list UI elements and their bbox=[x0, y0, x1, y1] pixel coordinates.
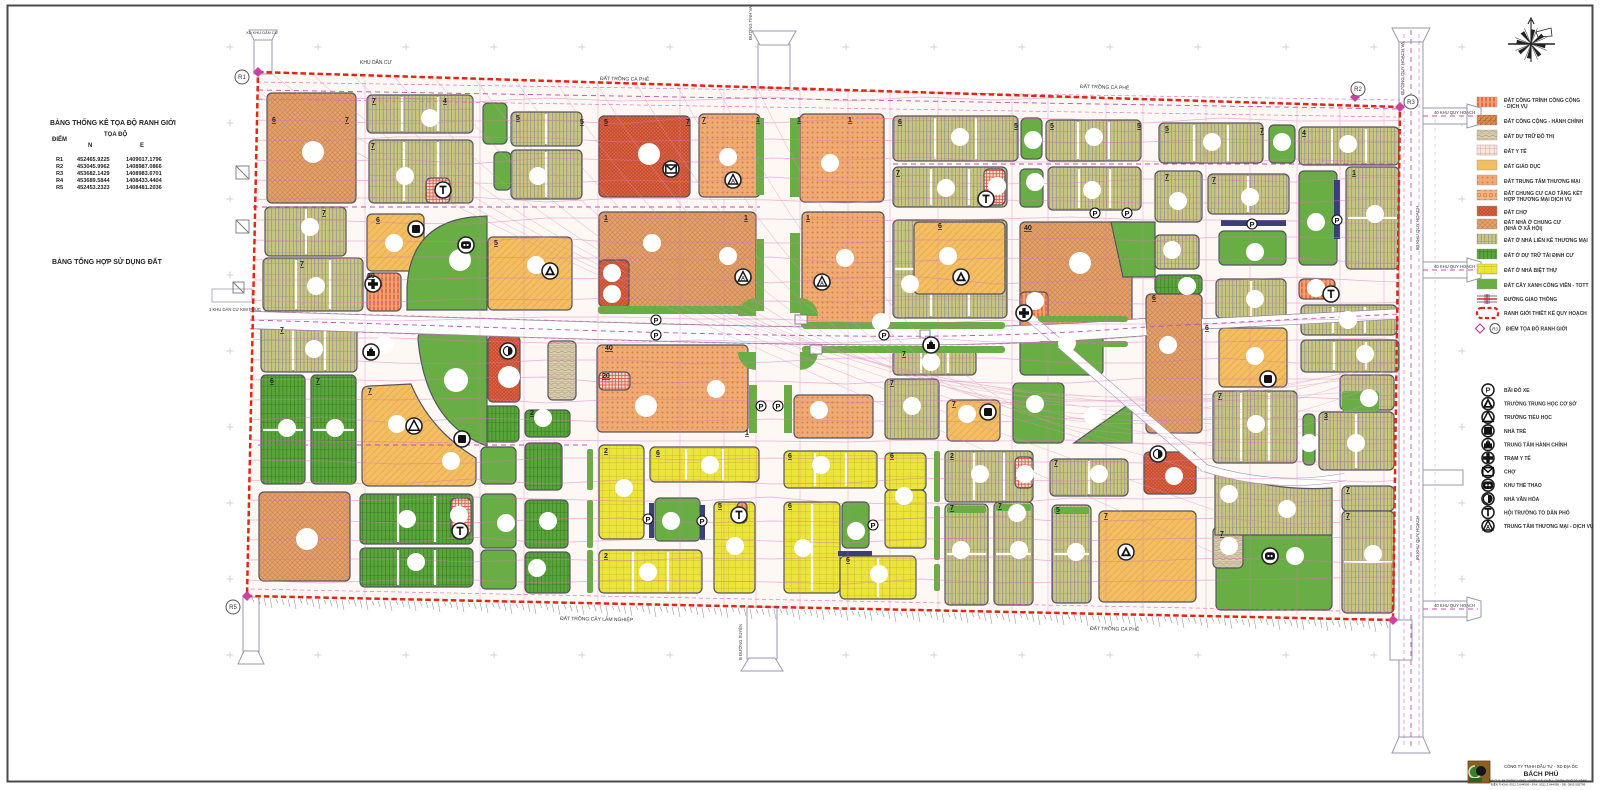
svg-text:TỌA ĐỘ: TỌA ĐỘ bbox=[104, 130, 127, 138]
svg-text:P: P bbox=[758, 402, 763, 411]
svg-text:ĐẤT Ở NHÀ LIÊN KẾ THƯƠNG MẠI: ĐẤT Ở NHÀ LIÊN KẾ THƯƠNG MẠI bbox=[1504, 236, 1588, 244]
svg-text:P: P bbox=[775, 402, 780, 411]
svg-text:R1: R1 bbox=[56, 157, 63, 163]
svg-text:6: 6 bbox=[890, 453, 894, 460]
svg-text:2: 2 bbox=[604, 448, 608, 455]
svg-text:CHỢ: CHỢ bbox=[1504, 470, 1516, 476]
svg-text:5: 5 bbox=[1165, 126, 1169, 133]
svg-text:KHU THỂ THAO: KHU THỂ THAO bbox=[1504, 482, 1542, 489]
svg-text:R3: R3 bbox=[1492, 327, 1498, 332]
svg-text:BÃI ĐỖ XE: BÃI ĐỖ XE bbox=[1504, 387, 1530, 394]
svg-text:B ĐƯỜNG XUYÊN: B ĐƯỜNG XUYÊN bbox=[738, 624, 743, 660]
svg-text:40 KHU QUY HOẠCH: 40 KHU QUY HOẠCH bbox=[1434, 264, 1475, 269]
svg-text:1408433.4404: 1408433.4404 bbox=[126, 178, 163, 184]
svg-text:ĐƯỜNG TỈNH VA: ĐƯỜNG TỈNH VA bbox=[748, 6, 753, 40]
svg-text:ĐIỆN THOẠI: 0511.3.644999 -: ĐIỆN THOẠI: 0511.3.644999 - FAX: 0511.3.… bbox=[1491, 782, 1586, 787]
svg-text:7: 7 bbox=[1218, 393, 1222, 400]
svg-text:6: 6 bbox=[938, 223, 942, 230]
svg-text:A: A bbox=[741, 276, 745, 282]
svg-text:452453.2323: 452453.2323 bbox=[77, 185, 110, 191]
svg-text:7: 7 bbox=[902, 351, 906, 358]
svg-text:7: 7 bbox=[1346, 487, 1350, 494]
svg-text:6: 6 bbox=[1152, 295, 1156, 302]
svg-text:60 KHU QUY HOẠCH: 60 KHU QUY HOẠCH bbox=[1415, 206, 1420, 250]
svg-text:5: 5 bbox=[604, 119, 608, 126]
svg-text:4: 4 bbox=[443, 98, 447, 105]
svg-text:R2: R2 bbox=[1354, 87, 1362, 93]
svg-text:P: P bbox=[1092, 209, 1097, 218]
svg-text:R4: R4 bbox=[56, 178, 64, 184]
svg-text:7: 7 bbox=[1104, 513, 1108, 520]
svg-text:452465.9225: 452465.9225 bbox=[77, 157, 110, 163]
svg-text:7: 7 bbox=[896, 170, 900, 177]
svg-text:5: 5 bbox=[1050, 123, 1054, 130]
svg-text:CÔNG TY TNHH ĐẦU TƯ - XD ĐỊA Ố: CÔNG TY TNHH ĐẦU TƯ - XD ĐỊA ỐC bbox=[1504, 764, 1578, 769]
svg-text:R3: R3 bbox=[1407, 100, 1415, 106]
svg-text:P: P bbox=[1334, 216, 1339, 225]
svg-text:6: 6 bbox=[272, 117, 276, 124]
svg-text:6: 6 bbox=[898, 119, 902, 126]
svg-text:7: 7 bbox=[280, 327, 284, 334]
svg-text:RANH GIỚI THIẾT KẾ QUY HOẠCH: RANH GIỚI THIẾT KẾ QUY HOẠCH bbox=[1504, 309, 1587, 317]
svg-text:ĐẤT Ở DỰ TRỮ TÁI ĐỊNH CƯ: ĐẤT Ở DỰ TRỮ TÁI ĐỊNH CƯ bbox=[1504, 252, 1574, 259]
svg-text:7: 7 bbox=[1212, 177, 1216, 184]
svg-text:P: P bbox=[645, 515, 650, 524]
svg-text:7: 7 bbox=[1165, 174, 1169, 181]
svg-text:6: 6 bbox=[1205, 325, 1209, 332]
svg-text:5: 5 bbox=[494, 240, 498, 247]
svg-text:7: 7 bbox=[952, 401, 956, 408]
svg-text:XD KHU DÂN CƯ: XD KHU DÂN CƯ bbox=[246, 30, 279, 35]
svg-text:6: 6 bbox=[656, 450, 660, 457]
svg-text:KHU DÂN CƯ: KHU DÂN CƯ bbox=[360, 59, 393, 66]
svg-text:P: P bbox=[870, 521, 875, 530]
svg-text:P: P bbox=[1485, 386, 1490, 395]
svg-text:2: 2 bbox=[530, 410, 534, 417]
svg-text:6: 6 bbox=[846, 557, 850, 564]
svg-text:1408481.2036: 1408481.2036 bbox=[126, 185, 162, 191]
svg-text:TRUNG TÂM HÀNH CHÍNH: TRUNG TÂM HÀNH CHÍNH bbox=[1504, 440, 1567, 448]
svg-text:R5: R5 bbox=[56, 185, 63, 191]
svg-text:7: 7 bbox=[316, 378, 320, 385]
svg-text:1: 1 bbox=[848, 117, 852, 124]
svg-text:1: 1 bbox=[756, 117, 760, 124]
svg-text:1408987.0866: 1408987.0866 bbox=[126, 164, 162, 170]
svg-text:5: 5 bbox=[516, 115, 520, 122]
svg-text:7: 7 bbox=[1054, 460, 1058, 467]
svg-text:2: 2 bbox=[950, 453, 954, 460]
svg-text:453682.1429: 453682.1429 bbox=[77, 171, 110, 177]
svg-text:1: 1 bbox=[797, 117, 801, 124]
svg-text:6: 6 bbox=[788, 503, 792, 510]
svg-text:7: 7 bbox=[368, 388, 372, 395]
svg-text:453689.5844: 453689.5844 bbox=[77, 178, 111, 184]
svg-text:7: 7 bbox=[890, 380, 894, 387]
svg-text:7: 7 bbox=[1220, 531, 1224, 538]
svg-text:- DỊCH VỤ: - DỊCH VỤ bbox=[1504, 104, 1528, 110]
svg-text:HỢP THƯƠNG MẠI DỊCH VỤ: HỢP THƯƠNG MẠI DỊCH VỤ bbox=[1504, 197, 1572, 203]
svg-text:A: A bbox=[1486, 525, 1490, 531]
svg-text:ĐẤT Ở NHÀ BIỆT THỰ: ĐẤT Ở NHÀ BIỆT THỰ bbox=[1504, 266, 1558, 274]
svg-text:ĐẤT CÔNG TRÌNH CÔNG CỘNG: ĐẤT CÔNG TRÌNH CÔNG CỘNG bbox=[1504, 96, 1580, 104]
svg-text:40: 40 bbox=[1024, 225, 1032, 232]
svg-text:ĐẤT CHỢ: ĐẤT CHỢ bbox=[1504, 209, 1528, 216]
svg-text:N: N bbox=[88, 143, 92, 149]
svg-text:P: P bbox=[653, 316, 658, 325]
svg-text:(NHÀ Ở XÃ HỘI): (NHÀ Ở XÃ HỘI) bbox=[1504, 224, 1543, 232]
svg-text:1408983.6701: 1408983.6701 bbox=[126, 171, 162, 177]
svg-text:ĐIỂM TỌA ĐỘ RANH GIỚI: ĐIỂM TỌA ĐỘ RANH GIỚI bbox=[1506, 325, 1568, 333]
svg-text:3: 3 bbox=[1324, 413, 1328, 420]
svg-text:ĐẤT CÔNG CỘNG - HÀNH CHÍNH: ĐẤT CÔNG CỘNG - HÀNH CHÍNH bbox=[1504, 117, 1584, 125]
svg-text:5: 5 bbox=[1137, 123, 1141, 130]
svg-text:7: 7 bbox=[1260, 128, 1264, 135]
svg-text:P: P bbox=[699, 517, 704, 526]
svg-text:P: P bbox=[1124, 209, 1129, 218]
svg-text:40 KHU QUY HOẠCH: 40 KHU QUY HOẠCH bbox=[1434, 110, 1475, 115]
svg-text:TRƯỜNG TRUNG HỌC CƠ SỞ: TRƯỜNG TRUNG HỌC CƠ SỞ bbox=[1504, 400, 1577, 408]
svg-text:R1: R1 bbox=[238, 75, 246, 81]
svg-text:1: 1 bbox=[604, 215, 608, 222]
svg-text:5: 5 bbox=[718, 503, 722, 510]
svg-text:20: 20 bbox=[367, 273, 375, 280]
svg-text:R5: R5 bbox=[229, 605, 237, 611]
svg-text:BÁCH PHÚ: BÁCH PHÚ bbox=[1524, 769, 1559, 778]
svg-text:7: 7 bbox=[950, 505, 954, 512]
svg-text:ĐẤT CÂY XANH CÔNG VIÊN - TOTT: ĐẤT CÂY XANH CÔNG VIÊN - TOTT bbox=[1504, 281, 1589, 289]
svg-text:P: P bbox=[881, 331, 886, 340]
svg-text:A: A bbox=[820, 281, 824, 287]
svg-text:40: 40 bbox=[605, 345, 613, 352]
svg-text:NHÀ VĂN HÓA: NHÀ VĂN HÓA bbox=[1504, 495, 1540, 503]
svg-text:7: 7 bbox=[998, 503, 1002, 510]
svg-text:P: P bbox=[1249, 220, 1254, 229]
svg-text:6: 6 bbox=[788, 453, 792, 460]
svg-text:40 KHU QUY HOẠCH: 40 KHU QUY HOẠCH bbox=[1434, 603, 1475, 608]
svg-text:A: A bbox=[731, 179, 735, 185]
svg-text:5: 5 bbox=[580, 119, 584, 126]
svg-text:7: 7 bbox=[1346, 513, 1350, 520]
svg-text:R2: R2 bbox=[56, 164, 63, 170]
svg-text:5: 5 bbox=[1056, 507, 1060, 514]
svg-text:7: 7 bbox=[686, 119, 690, 126]
svg-text:20: 20 bbox=[602, 373, 610, 380]
svg-text:6: 6 bbox=[270, 378, 274, 385]
svg-text:7: 7 bbox=[322, 210, 326, 217]
svg-text:TRƯỜNG TIỂU HỌC: TRƯỜNG TIỂU HỌC bbox=[1504, 413, 1552, 421]
svg-text:7: 7 bbox=[345, 117, 349, 124]
svg-text:4: 4 bbox=[1302, 130, 1306, 137]
svg-text:1: 1 bbox=[744, 215, 748, 222]
svg-text:1: 1 bbox=[1352, 170, 1356, 177]
svg-text:7: 7 bbox=[702, 117, 706, 124]
svg-text:TRẠM Y TẾ: TRẠM Y TẾ bbox=[1504, 455, 1531, 462]
svg-text:ĐẤT Y TẾ: ĐẤT Y TẾ bbox=[1504, 148, 1527, 155]
svg-text:6: 6 bbox=[376, 217, 380, 224]
svg-text:7: 7 bbox=[372, 98, 376, 105]
svg-text:ĐẤT TRUNG TÂM THƯƠNG MẠI: ĐẤT TRUNG TÂM THƯƠNG MẠI bbox=[1504, 178, 1581, 185]
svg-text:ĐẤT NHÀ Ở CHUNG CƯ: ĐẤT NHÀ Ở CHUNG CƯ bbox=[1504, 219, 1562, 226]
svg-text:HỘI TRƯỜNG TỔ DÂN PHỐ: HỘI TRƯỜNG TỔ DÂN PHỐ bbox=[1504, 508, 1570, 516]
svg-text:7: 7 bbox=[371, 143, 375, 150]
svg-text:1409017.1796: 1409017.1796 bbox=[126, 157, 162, 163]
svg-text:1: 1 bbox=[806, 215, 810, 222]
svg-text:NHÀ TRẺ: NHÀ TRẺ bbox=[1504, 428, 1527, 435]
svg-text:1 KHU DÂN CƯ KIM PHÚC: 1 KHU DÂN CƯ KIM PHÚC bbox=[209, 307, 261, 312]
svg-text:ĐIỂM: ĐIỂM bbox=[52, 136, 67, 143]
svg-text:P: P bbox=[653, 331, 658, 340]
svg-text:R3: R3 bbox=[56, 171, 63, 177]
svg-text:ĐƯỜNG GIAO THÔNG: ĐƯỜNG GIAO THÔNG bbox=[1504, 295, 1557, 303]
svg-text:453045.9962: 453045.9962 bbox=[77, 164, 110, 170]
svg-text:ĐẤT GIÁO DỤC: ĐẤT GIÁO DỤC bbox=[1504, 163, 1541, 170]
svg-text:TRUNG TÂM THƯƠNG MẠI - DỊCH VỤ: TRUNG TÂM THƯƠNG MẠI - DỊCH VỤ bbox=[1504, 523, 1594, 530]
svg-text:1: 1 bbox=[745, 430, 749, 437]
svg-text:ĐẤT DỰ TRỮ ĐÔ THỊ: ĐẤT DỰ TRỮ ĐÔ THỊ bbox=[1504, 132, 1555, 140]
svg-text:5: 5 bbox=[1014, 123, 1018, 130]
svg-text:60 KHU QUY HOẠCH: 60 KHU QUY HOẠCH bbox=[1415, 516, 1420, 560]
svg-text:E: E bbox=[140, 143, 144, 149]
svg-text:2: 2 bbox=[604, 553, 608, 560]
svg-text:ĐƯỜNG QUY HOẠCH VA: ĐƯỜNG QUY HOẠCH VA bbox=[1399, 42, 1405, 95]
svg-text:7: 7 bbox=[300, 261, 304, 268]
svg-text:ĐẤT CHUNG CƯ CAO TẦNG KẾT: ĐẤT CHUNG CƯ CAO TẦNG KẾT bbox=[1504, 190, 1583, 197]
